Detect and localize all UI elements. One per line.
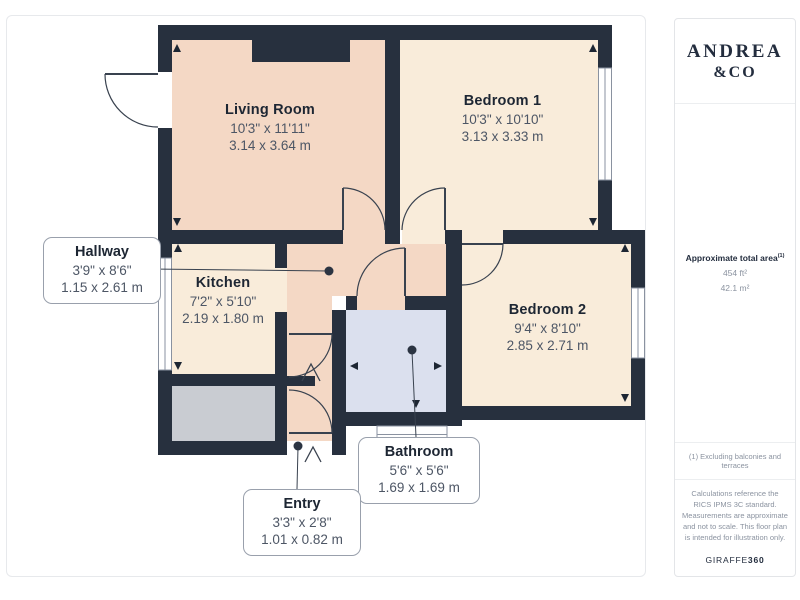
- room-dim-imperial: 7'2" x 5'10": [138, 293, 308, 311]
- wall-segment: [598, 25, 612, 68]
- agency-logo-line2: &CO: [713, 64, 756, 82]
- wall-segment: [631, 244, 645, 288]
- wall-segment: [158, 128, 172, 232]
- agency-logo: ANDREA &CO: [675, 19, 795, 104]
- room-dim-imperial: 9'4" x 8'10": [460, 320, 635, 338]
- room-dim-metric: 1.01 x 0.82 m: [248, 531, 356, 549]
- chimney-breast: [252, 40, 350, 62]
- room-dim-imperial: 5'6" x 5'6": [363, 462, 475, 480]
- door-opening: [357, 296, 405, 310]
- room-title: Entry: [248, 495, 356, 514]
- room-title: Kitchen: [138, 274, 308, 293]
- wall-segment: [158, 374, 287, 386]
- door-opening: [402, 230, 445, 244]
- wall-segment: [346, 296, 357, 310]
- wall-segment: [346, 412, 462, 426]
- room-dim-metric: 2.19 x 1.80 m: [138, 310, 308, 328]
- wall-segment: [448, 406, 645, 420]
- total-area-metric: 42.1 m²: [721, 283, 750, 293]
- room-dim-metric: 3.13 x 3.33 m: [415, 128, 590, 146]
- callout-hallway: Hallway 3'9" x 8'6" 1.15 x 2.61 m: [43, 237, 161, 304]
- room-dim-imperial: 3'3" x 2'8": [248, 514, 356, 532]
- wall-segment: [385, 25, 400, 244]
- room-store: [172, 386, 275, 441]
- room-title: Bedroom 1: [415, 92, 590, 111]
- room-dim-imperial: 10'3" x 10'10": [415, 111, 590, 129]
- wall-segment: [158, 230, 343, 244]
- total-area-heading: Approximate total area(1): [686, 253, 785, 263]
- giraffe360-logo: GIRAFFE360: [682, 554, 788, 566]
- wall-segment: [158, 25, 172, 72]
- agency-logo-line1: ANDREA: [687, 41, 783, 63]
- room-title: Living Room: [185, 101, 355, 120]
- wall-segment: [332, 441, 346, 455]
- room-dim-metric: 1.69 x 1.69 m: [363, 479, 475, 497]
- area-footnote: (1) Excluding balconies and terraces: [675, 442, 795, 479]
- callout-entry: Entry 3'3" x 2'8" 1.01 x 0.82 m: [243, 489, 361, 556]
- label-living-room: Living Room 10'3" x 11'11" 3.14 x 3.64 m: [185, 101, 355, 155]
- sidebar-card: ANDREA &CO Approximate total area(1) 454…: [674, 18, 796, 577]
- wall-segment: [445, 230, 462, 244]
- wall-segment: [275, 232, 287, 268]
- footnote-marker: (1): [778, 253, 785, 259]
- total-area-section: Approximate total area(1) 454 ft² 42.1 m…: [675, 104, 795, 442]
- room-hallway: [287, 244, 446, 296]
- room-title: Bathroom: [363, 443, 475, 462]
- wall-segment: [332, 310, 346, 455]
- disclaimer-section: Calculations reference the RICS IPMS 3C …: [675, 479, 795, 576]
- wall-segment: [287, 376, 315, 386]
- room-dim-metric: 1.15 x 2.61 m: [48, 279, 156, 297]
- wall-segment: [158, 441, 287, 455]
- wall-segment: [503, 230, 645, 244]
- label-kitchen: Kitchen 7'2" x 5'10" 2.19 x 1.80 m: [138, 274, 308, 328]
- door-opening: [462, 230, 503, 244]
- label-bedroom-2: Bedroom 2 9'4" x 8'10" 2.85 x 2.71 m: [460, 301, 635, 355]
- room-title: Hallway: [48, 243, 156, 262]
- door-opening: [315, 376, 332, 386]
- label-bedroom-1: Bedroom 1 10'3" x 10'10" 3.13 x 3.33 m: [415, 92, 590, 146]
- callout-bathroom: Bathroom 5'6" x 5'6" 1.69 x 1.69 m: [358, 437, 480, 504]
- room-dim-imperial: 3'9" x 8'6": [48, 262, 156, 280]
- disclaimer-text: Calculations reference the RICS IPMS 3C …: [682, 489, 788, 542]
- room-bathroom: [346, 310, 446, 412]
- room-dim-imperial: 10'3" x 11'11": [185, 120, 355, 138]
- room-dim-metric: 2.85 x 2.71 m: [460, 337, 635, 355]
- room-title: Bedroom 2: [460, 301, 635, 320]
- room-dim-metric: 3.14 x 3.64 m: [185, 137, 355, 155]
- door-opening: [343, 230, 385, 244]
- total-area-imperial: 454 ft²: [723, 268, 747, 278]
- wall-segment: [405, 296, 446, 310]
- wall-segment: [275, 386, 287, 441]
